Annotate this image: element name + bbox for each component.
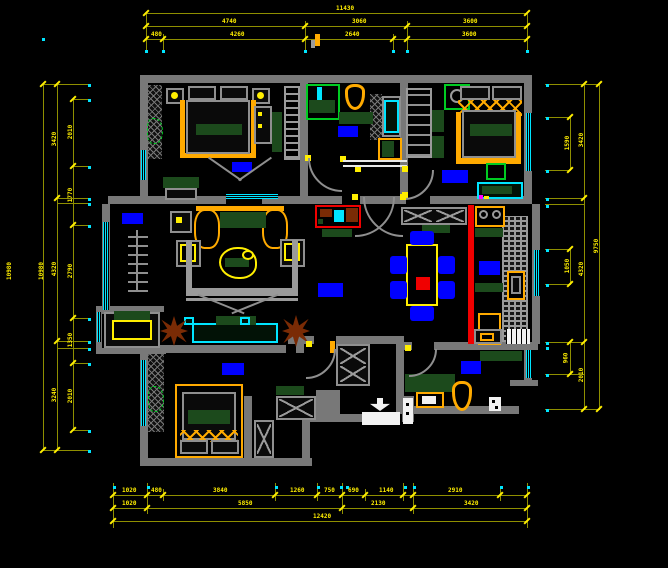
cabinet [432,110,444,132]
closet-x [340,348,366,364]
appliance-inner [511,276,521,294]
shower-bench [309,100,335,113]
dresser [254,106,272,144]
plant [148,386,164,412]
knob [176,217,182,223]
desk-top [482,186,512,194]
wall [140,83,148,201]
dining-chair [390,256,407,274]
wall [108,196,148,204]
headboard [492,86,522,100]
console-item [318,219,323,224]
view-line [231,294,278,315]
knob [258,112,262,116]
mat [461,361,481,374]
mirror [384,100,399,133]
centerpiece [416,277,430,290]
closet-top [276,386,304,395]
wall [316,390,340,422]
sectional [292,240,298,294]
sectional [186,298,298,301]
window [141,150,146,180]
footboard [211,440,239,454]
window [97,312,101,342]
section-marker [315,34,320,46]
rug-label-block [222,363,244,375]
sideboard-x [436,210,464,222]
tv-cabinet [192,323,278,343]
dining-chair [410,306,434,321]
wall [140,458,312,466]
toilet [345,84,365,110]
dining-table [406,244,438,306]
dining-chair [438,281,455,299]
shelf [480,351,522,361]
jamb-dot [406,403,409,406]
hinge [306,341,312,347]
cabinet-green [382,141,394,157]
wardrobe [284,86,300,160]
partition-highlight [468,205,474,344]
tv [216,316,256,325]
footboard [180,440,208,454]
table-deco [242,250,254,260]
headboard [188,86,216,100]
wardrobe [406,88,432,158]
entry-arrow-icon [370,398,390,411]
counter [475,283,503,292]
stove-burner-icon [479,210,488,219]
mat [338,126,358,137]
drain-dot [492,400,495,403]
lamp [171,92,178,99]
bed-runner [196,124,242,135]
dining-chair [390,281,407,299]
desk-chair [486,163,506,180]
window [141,360,146,426]
sofa-cushions [220,212,266,228]
stove-burner-icon [492,210,501,219]
dot [479,195,483,199]
wall [140,75,532,83]
sofa-rail [196,206,284,211]
rug-label-block [442,170,468,183]
bed-rail [516,112,521,162]
room-label-block [479,261,500,275]
lamp [257,92,264,99]
dining-chair [438,256,455,274]
entry-pad [362,412,400,425]
floor-plan-layer [0,0,668,568]
wall [244,396,252,458]
cabinet [272,112,282,152]
bench [165,188,197,200]
counter [475,228,503,237]
counter-unit [506,329,530,344]
closet-x [257,424,271,454]
plant [147,118,163,144]
section-marker [311,40,315,48]
room-label-block [318,283,343,297]
door-arc [381,321,437,377]
shelf [322,229,352,237]
drain-dot [495,406,498,409]
jamb-dot [406,412,409,415]
sink [480,333,494,341]
coat-rack [128,230,148,292]
dot [484,196,489,199]
window [526,350,532,378]
bed-runner [470,124,512,136]
wall [148,345,286,353]
dining-chair [410,231,434,245]
window [103,222,109,310]
headboard [220,86,248,100]
bay-cushion [114,311,150,320]
bed-runner [188,410,230,424]
wall-line [343,160,407,162]
entry-jamb [403,398,413,424]
window [226,194,278,199]
shelf [339,112,373,124]
closet-x [340,366,366,382]
bed-rail [456,112,461,162]
console-item [334,210,344,222]
tv-side [240,317,250,325]
cabinet [432,136,444,158]
room-label-block [122,213,143,224]
wall [336,336,404,344]
knob [258,124,262,128]
sideboard-x [404,210,432,222]
basin-bowl [422,396,436,404]
console-item [320,209,332,217]
closet-x [279,399,313,417]
window [526,113,532,171]
bay-bench-frame [112,320,152,340]
headboard [460,86,490,100]
sectional [186,240,192,294]
window [534,250,540,296]
bed-rail [180,100,185,158]
wall [306,196,342,204]
cad-canvas[interactable]: 1143047403060360048042602640360010204803… [0,0,668,568]
wall-line [343,165,407,167]
bench [163,177,199,188]
